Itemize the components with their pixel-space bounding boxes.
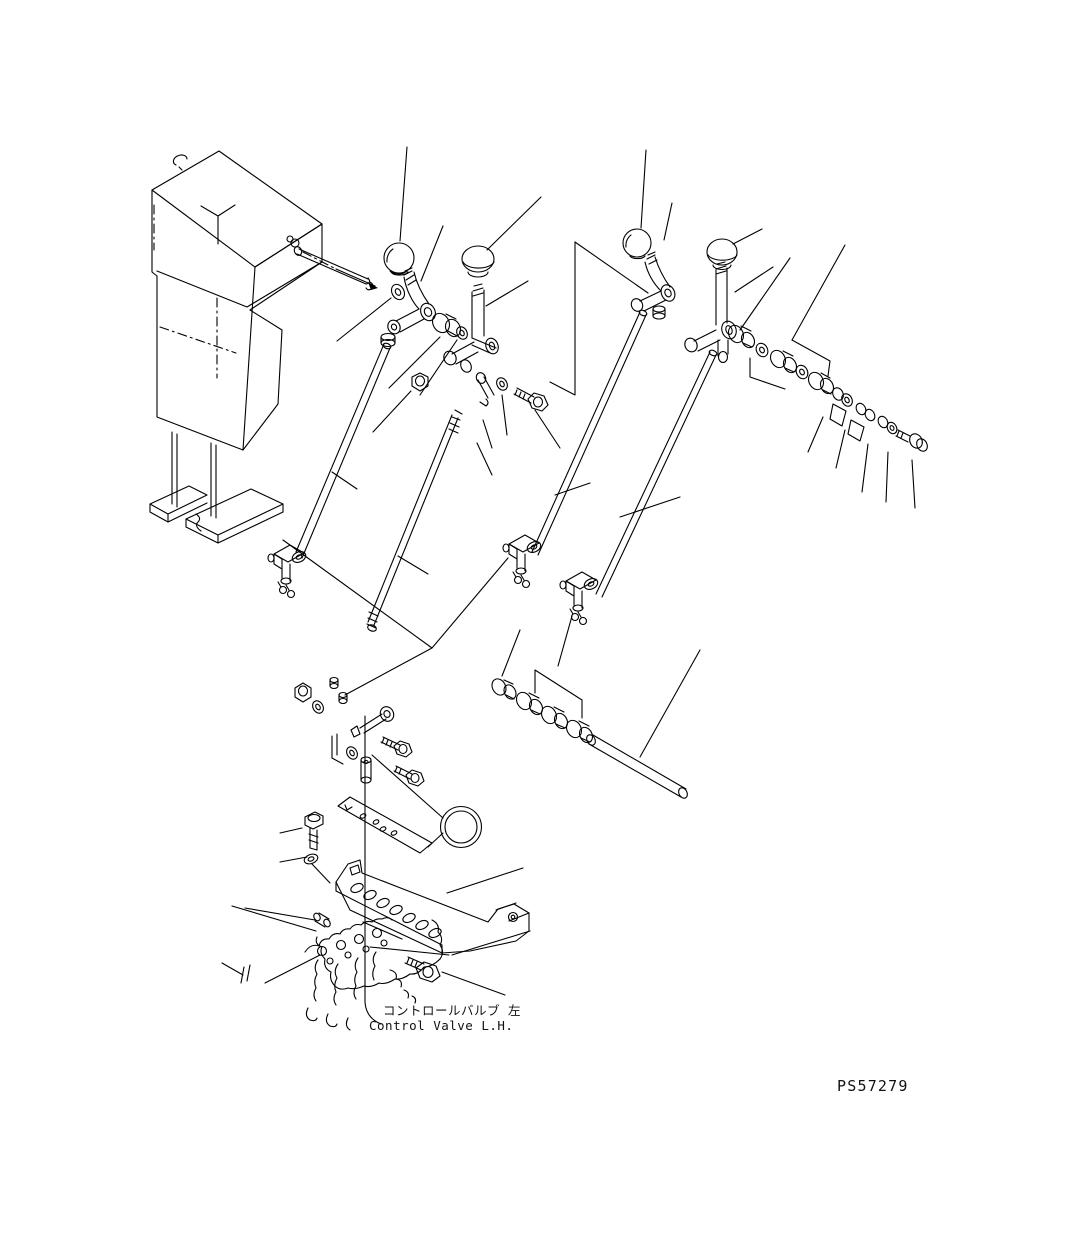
drawing-code: PS57279 — [837, 1077, 909, 1095]
bushing-row — [489, 670, 689, 800]
part-callout-31[interactable]: 31 — [441, 807, 482, 848]
ball-knob-group — [384, 229, 737, 277]
cover-plate — [338, 797, 432, 853]
exploded-view-drawing: 31 コントロールバルブ 左 Control Valve L.H. PS5727… — [0, 0, 1077, 1242]
valve-stand-housing — [150, 151, 322, 543]
right-hardware-chain — [726, 323, 930, 453]
hardware-lower-middle — [295, 678, 424, 787]
rod-end-clevis-group — [268, 535, 599, 625]
parts-diagram-page: 31 コントロールバルブ 左 Control Valve L.H. PS5727… — [0, 0, 1077, 1242]
control-rod-group — [296, 309, 718, 632]
pivot-pin — [287, 236, 373, 290]
caption-english: Control Valve L.H. — [369, 1018, 513, 1033]
control-lever-group — [381, 252, 739, 367]
leader-lines — [222, 147, 915, 1024]
callout-number: 31 — [452, 820, 470, 836]
caption-japanese: コントロールバルブ 左 — [383, 1003, 521, 1018]
